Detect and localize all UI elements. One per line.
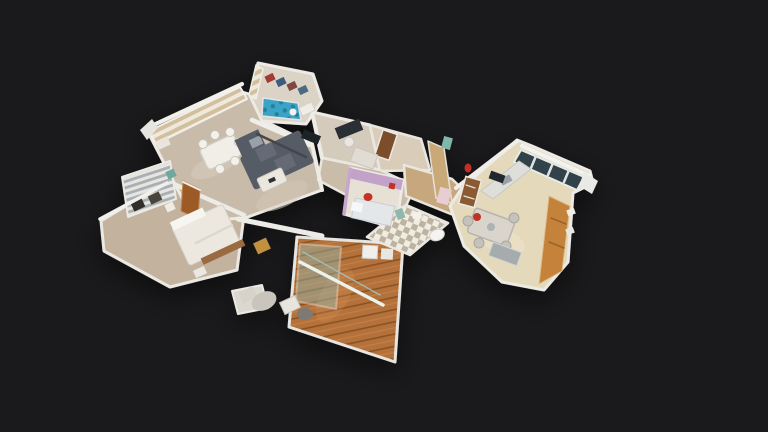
terrace-glass-partition — [296, 244, 341, 309]
dining-chair-6 — [216, 165, 225, 174]
dining-chair-3 — [226, 128, 235, 137]
dining-chair-1 — [199, 140, 208, 149]
kitchen-chair-1 — [463, 216, 473, 226]
dollhouse-3d-view[interactable] — [0, 0, 768, 432]
kids-red-toy — [364, 193, 373, 201]
viewer-stage — [0, 0, 768, 432]
office-chair — [344, 137, 354, 147]
dining-chair-5 — [231, 157, 240, 166]
kitchen-table-item — [487, 223, 495, 231]
nursery-rug-toy — [290, 109, 297, 116]
kitchen-red-chair — [473, 213, 481, 221]
dining-chair-2 — [211, 131, 220, 140]
kitchen-chair-4 — [509, 213, 519, 223]
washing-machine-1 — [362, 245, 378, 259]
washing-machine-2 — [381, 248, 394, 260]
bath-sink — [412, 212, 422, 220]
kitchen-red-item — [465, 164, 472, 173]
terrace-unit-4 — [297, 308, 313, 320]
kids-red-chair — [388, 182, 395, 189]
kitchen-chair-2 — [474, 238, 484, 248]
